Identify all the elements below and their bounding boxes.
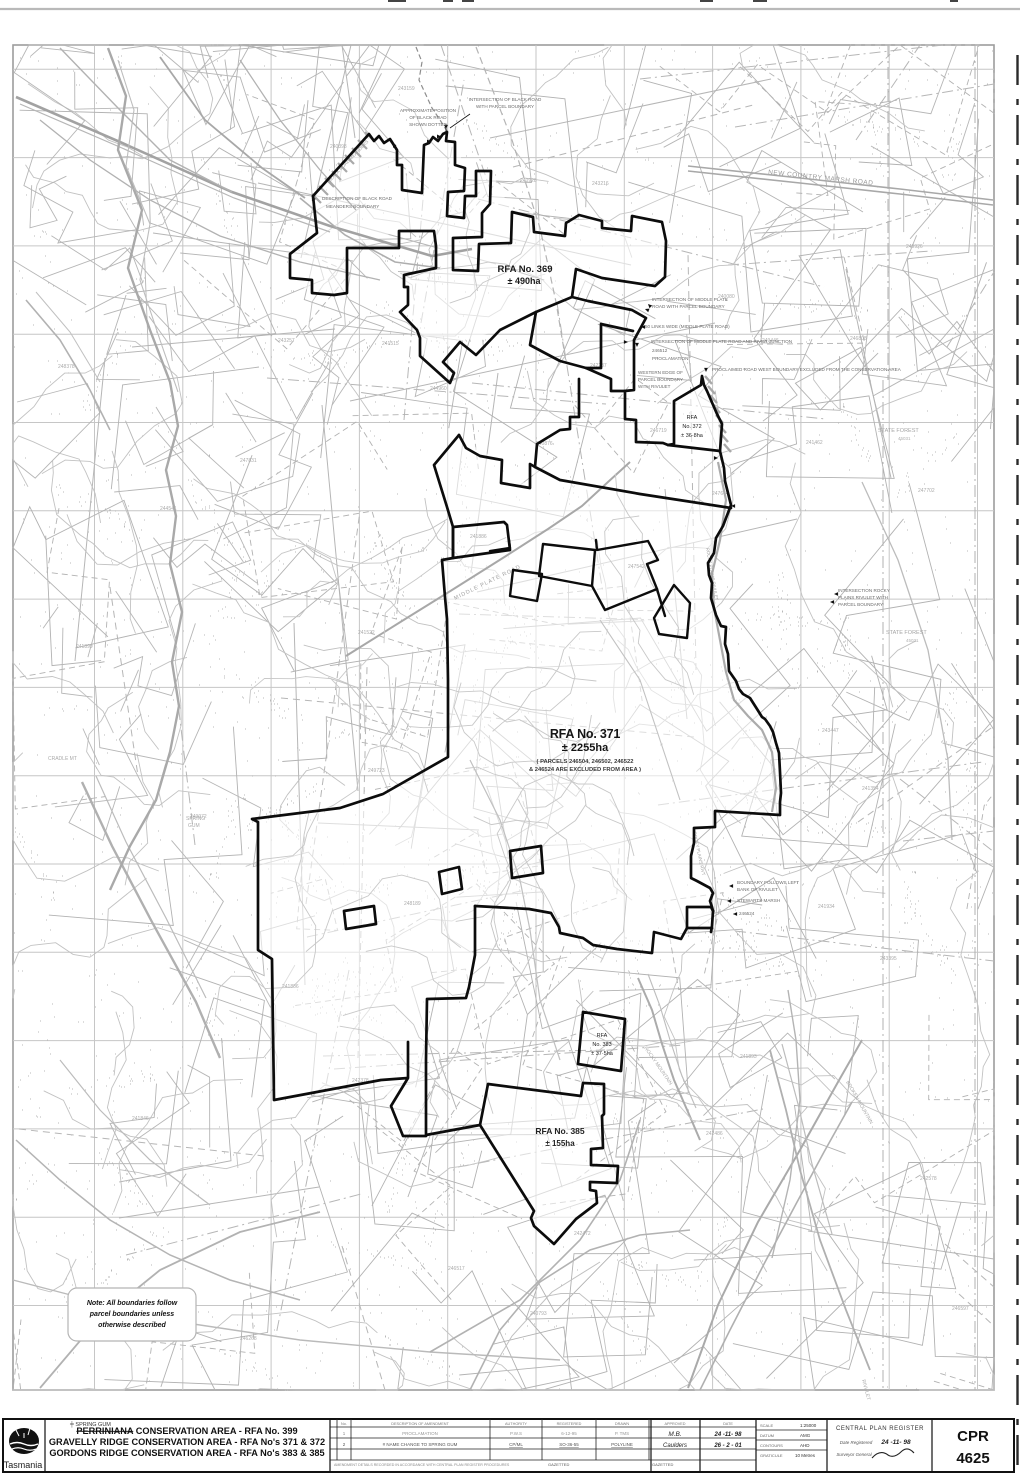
- svg-text:243257: 243257: [278, 338, 295, 344]
- svg-text:# NAME CHANGE TO SPRING GU: # NAME CHANGE TO SPRING GUM: [383, 1442, 458, 1447]
- svg-text:247831: 247831: [240, 458, 257, 464]
- svg-text:247702: 247702: [918, 488, 935, 494]
- svg-text:P. TMS: P. TMS: [615, 1431, 629, 1436]
- svg-text:WITH RIVULET: WITH RIVULET: [638, 384, 671, 389]
- svg-text:CRADLE MT: CRADLE MT: [48, 756, 77, 762]
- svg-text:parcel boundaries unless: parcel boundaries unless: [89, 1311, 175, 1318]
- svg-text:No. 372: No. 372: [682, 424, 701, 430]
- svg-text:RFA No. 371: RFA No. 371: [550, 727, 621, 741]
- svg-text:CENTRAL PLAN REGISTER: CENTRAL PLAN REGISTER: [836, 1426, 924, 1432]
- svg-text:± 36·8ha: ± 36·8ha: [681, 433, 704, 439]
- svg-text:PROCLAMATION: PROCLAMATION: [652, 356, 688, 361]
- svg-text:249926: 249926: [906, 244, 923, 250]
- svg-text:CPR: CPR: [957, 1428, 989, 1445]
- svg-text:246719: 246719: [650, 428, 667, 434]
- svg-text:RFA: RFA: [597, 1033, 608, 1039]
- svg-text:AMG: AMG: [800, 1433, 811, 1438]
- svg-text:45031: 45031: [906, 638, 919, 643]
- svg-text:STEWARTS MARSH: STEWARTS MARSH: [737, 898, 780, 903]
- svg-text:SPRING: SPRING: [186, 816, 205, 822]
- svg-text:RFA: RFA: [687, 415, 698, 421]
- svg-text:Date Registered: Date Registered: [840, 1440, 873, 1445]
- svg-text:P.W.S: P.W.S: [510, 1431, 522, 1436]
- svg-text:APPROVED: APPROVED: [664, 1422, 685, 1426]
- svg-text:RFA No. 385: RFA No. 385: [535, 1126, 585, 1136]
- svg-text:WESTERN EDGE OF: WESTERN EDGE OF: [638, 370, 683, 375]
- svg-text:GRATICULE: GRATICULE: [760, 1453, 783, 1458]
- svg-text:GUM: GUM: [188, 823, 200, 829]
- svg-text:242578: 242578: [920, 1176, 937, 1182]
- svg-text:243216: 243216: [592, 181, 609, 187]
- svg-text:DATE: DATE: [723, 1422, 733, 1426]
- svg-text:243447: 243447: [822, 728, 839, 734]
- svg-text:POLYLINE: POLYLINE: [611, 1442, 633, 1447]
- svg-text:1:25000: 1:25000: [800, 1423, 817, 1428]
- svg-text:248189: 248189: [404, 901, 421, 907]
- svg-text:24 -11- 98: 24 -11- 98: [714, 1432, 743, 1438]
- svg-text:INTERSECTION OF MIDDLE PLATE: INTERSECTION OF MIDDLE PLATE: [652, 297, 728, 302]
- svg-text:4625: 4625: [956, 1450, 989, 1467]
- svg-text:241886: 241886: [470, 534, 487, 540]
- svg-text:BANK OF RIVULET: BANK OF RIVULET: [737, 887, 778, 892]
- svg-text:No.: No.: [341, 1422, 347, 1426]
- svg-text:INTERSECTION OF BLACK ROAD: INTERSECTION OF BLACK ROAD: [469, 97, 542, 102]
- svg-text:BOUNDARY FOLLOWS LEFT: BOUNDARY FOLLOWS LEFT: [737, 880, 799, 885]
- svg-text:Note: All boundaries follow: Note: All boundaries follow: [87, 1300, 178, 1307]
- svg-text:PROCLAMATION: PROCLAMATION: [402, 1431, 438, 1436]
- svg-text:PROCLAIMED ROAD WEST BOUNDARY: PROCLAIMED ROAD WEST BOUNDARY EXCLUDED F…: [712, 367, 902, 372]
- svg-text:PARCEL BOUNDARY: PARCEL BOUNDARY: [638, 377, 683, 382]
- svg-text:241354: 241354: [862, 786, 879, 792]
- svg-text:otherwise described: otherwise described: [98, 1322, 166, 1329]
- svg-text:PARCEL BOUNDARY: PARCEL BOUNDARY: [838, 602, 883, 607]
- svg-text:GAZETTED: GAZETTED: [652, 1462, 673, 1467]
- svg-text:OF BLACK ROAD: OF BLACK ROAD: [409, 115, 447, 120]
- svg-text:24 -11- 98: 24 -11- 98: [880, 1439, 911, 1446]
- svg-text:246268: 246268: [240, 1336, 257, 1342]
- svg-text:240393: 240393: [330, 144, 347, 150]
- svg-text:SCALE: SCALE: [760, 1423, 773, 1428]
- svg-text:Surveyor General: Surveyor General: [836, 1452, 872, 1457]
- svg-text:ROAD WITH PARCEL BOUNDARY: ROAD WITH PARCEL BOUNDARY: [652, 304, 725, 309]
- svg-text:± 2255ha: ± 2255ha: [562, 742, 609, 754]
- svg-text:SHOWN DOTTED: SHOWN DOTTED: [409, 122, 447, 127]
- svg-text:241846: 241846: [132, 1116, 149, 1122]
- svg-text:± 490ha: ± 490ha: [508, 276, 542, 286]
- svg-text:244960: 244960: [430, 386, 447, 392]
- svg-text:AHD: AHD: [800, 1443, 810, 1448]
- svg-text:RFA No. 369: RFA No. 369: [497, 264, 552, 275]
- svg-text:246517: 246517: [448, 1266, 465, 1272]
- svg-text:242472: 242472: [574, 1231, 591, 1237]
- svg-text:GRAVELLY RIDGE CONSERVATION AR: GRAVELLY RIDGE CONSERVATION AREA - RFA N…: [49, 1437, 325, 1447]
- svg-text:& 246524 ARE EXCLUDED FROM ARE: & 246524 ARE EXCLUDED FROM AREA ): [529, 767, 641, 773]
- svg-text:DESCRIPTION OF BLACK ROAD: DESCRIPTION OF BLACK ROAD: [322, 196, 393, 201]
- svg-text:CP/ML: CP/ML: [509, 1442, 523, 1447]
- svg-text:10 Metres: 10 Metres: [795, 1453, 816, 1458]
- svg-text:241522: 241522: [358, 630, 375, 636]
- svg-text:246512: 246512: [652, 348, 668, 353]
- svg-text:PLAINS RIVULET WITH: PLAINS RIVULET WITH: [838, 595, 888, 600]
- svg-text:AMENDMENT DETAILS RECORDED IN: AMENDMENT DETAILS RECORDED IN ACCORDANCE…: [334, 1463, 510, 1467]
- svg-text:246597: 246597: [952, 1306, 969, 1312]
- svg-text:241515: 241515: [382, 341, 399, 347]
- svg-text:242486: 242486: [706, 1131, 723, 1137]
- svg-text:241462: 241462: [806, 440, 823, 446]
- svg-text:241934: 241934: [818, 904, 835, 910]
- svg-text:( PARCELS 246504, 246502, 2465: ( PARCELS 246504, 246502, 246522: [537, 759, 634, 765]
- svg-text:GAZETTED: GAZETTED: [548, 1462, 569, 1467]
- svg-text:CONTOURS: CONTOURS: [760, 1443, 783, 1448]
- svg-text:AUTHORITY: AUTHORITY: [505, 1422, 527, 1426]
- svg-text:STATE FOREST: STATE FOREST: [878, 428, 919, 434]
- svg-text:No. 383: No. 383: [592, 1042, 611, 1048]
- svg-text:REGISTERED: REGISTERED: [557, 1422, 582, 1426]
- svg-text:246808: 246808: [850, 336, 867, 342]
- svg-text:Caulders: Caulders: [663, 1443, 687, 1449]
- svg-text:26 - 2 - 01: 26 - 2 - 01: [713, 1443, 742, 1449]
- svg-text:244541: 244541: [160, 506, 177, 512]
- svg-text:6-12-95: 6-12-95: [561, 1431, 577, 1436]
- svg-text:50 LINKS WIDE (MIDDLE PLATE RO: 50 LINKS WIDE (MIDDLE PLATE ROAD): [645, 324, 730, 329]
- svg-text:246524: 246524: [739, 911, 755, 916]
- svg-text:247542: 247542: [628, 564, 645, 570]
- svg-text:241899: 241899: [76, 644, 93, 650]
- svg-text:± 37·5ha: ± 37·5ha: [591, 1051, 614, 1057]
- svg-text:45031: 45031: [898, 436, 911, 441]
- svg-text:249723: 249723: [368, 768, 385, 774]
- svg-text:PERRINIANA CONSERVATION AREA -: PERRINIANA CONSERVATION AREA - RFA No. 3…: [76, 1426, 297, 1436]
- svg-text:Tasmania: Tasmania: [4, 1460, 43, 1470]
- svg-text:STATE FOREST: STATE FOREST: [886, 630, 927, 636]
- svg-text:240793: 240793: [530, 1311, 547, 1317]
- svg-text:240928: 240928: [520, 178, 537, 184]
- svg-text:241893: 241893: [740, 1054, 757, 1060]
- svg-text:M.B.: M.B.: [668, 1431, 682, 1438]
- svg-text:DATUM: DATUM: [760, 1433, 774, 1438]
- svg-text:± 155ha: ± 155ha: [545, 1139, 575, 1148]
- svg-text:WITH PARCEL BOUNDARY: WITH PARCEL BOUNDARY: [476, 104, 534, 109]
- svg-text:248378: 248378: [58, 364, 75, 370]
- svg-text:MEANDERS BOUNDARY: MEANDERS BOUNDARY: [326, 204, 379, 209]
- svg-text:DESCRIPTION OF AMENDMENT: DESCRIPTION OF AMENDMENT: [391, 1422, 449, 1426]
- svg-text:INTERSECTION ROCKY: INTERSECTION ROCKY: [838, 588, 890, 593]
- svg-text:SO-36-55: SO-36-55: [559, 1442, 579, 1447]
- svg-text:GORDONS RIDGE CONSERVATION ARE: GORDONS RIDGE CONSERVATION AREA - RFA No…: [49, 1448, 324, 1458]
- svg-text:DRAWN: DRAWN: [615, 1422, 629, 1426]
- svg-text:INTERSECTION OF MIDDLE PLATE R: INTERSECTION OF MIDDLE PLATE ROAD AND RI…: [651, 339, 792, 344]
- svg-text:APPROXIMATE POSITION: APPROXIMATE POSITION: [400, 108, 456, 113]
- svg-text:243159: 243159: [398, 86, 415, 92]
